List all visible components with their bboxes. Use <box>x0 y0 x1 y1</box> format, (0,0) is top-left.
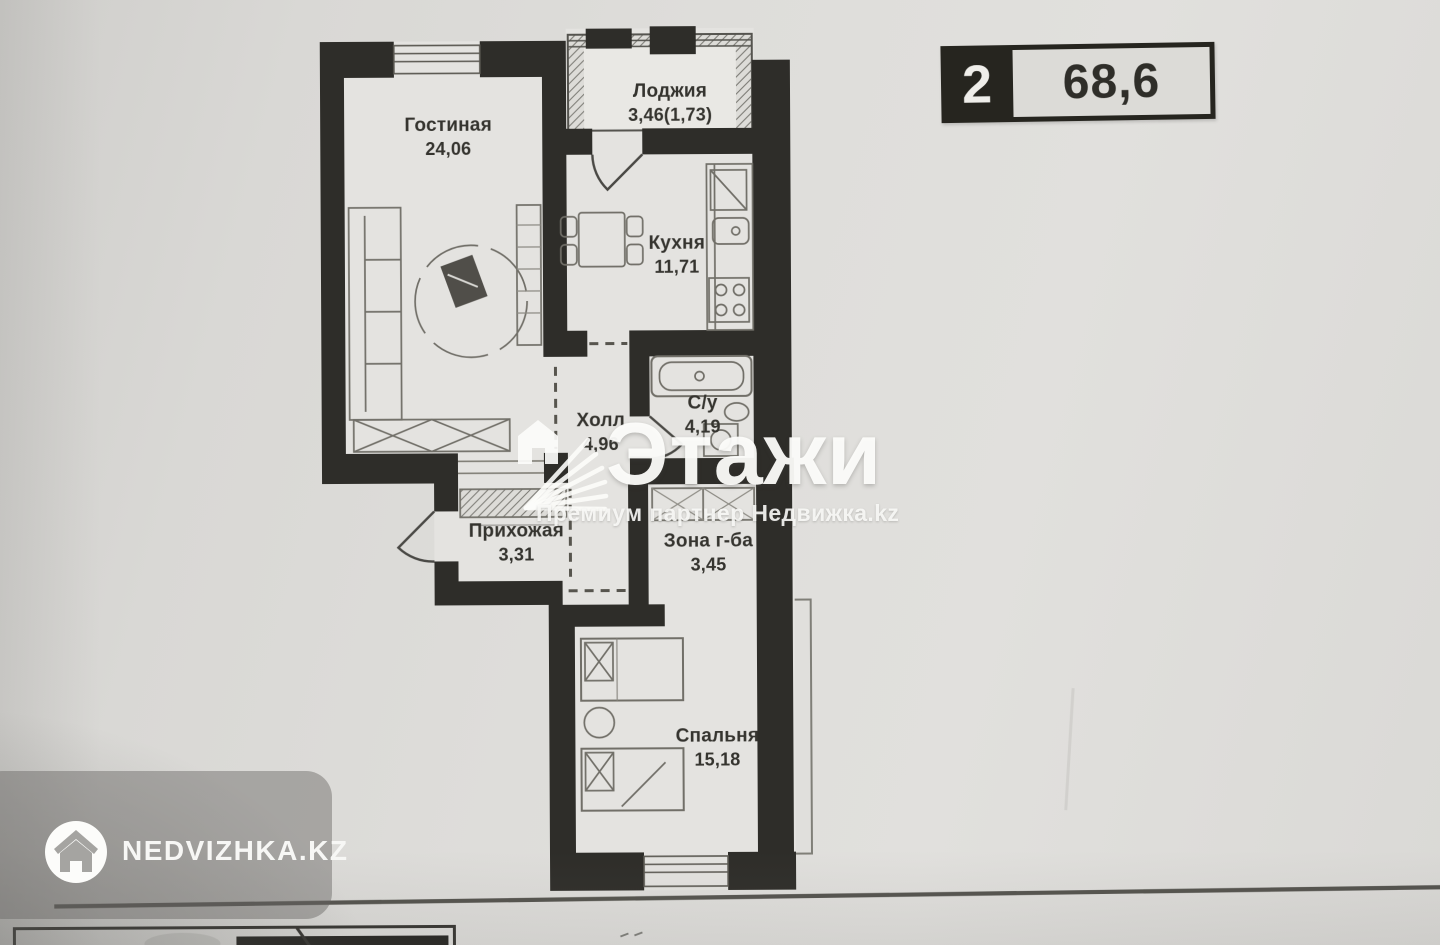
facade-step-line <box>795 600 812 854</box>
badge-total-area: 68,6 <box>1012 47 1210 117</box>
etazhi-watermark: Этажи Премиум партнер Недвижка.kz <box>512 408 942 536</box>
room-area: 11,71 <box>649 256 706 279</box>
room-area: 3,45 <box>664 553 753 576</box>
room-label-kuhnya: Кухня 11,71 <box>648 231 705 279</box>
nedvizhka-site-text: NEDVIZHKA.KZ <box>122 837 348 865</box>
watermark-brand: Этажи <box>606 410 882 498</box>
room-label-lodzhiya: Лоджия 3,46(1,73) <box>628 79 712 127</box>
room-area: 3,46(1,73) <box>628 104 712 127</box>
room-label-spalnya: Спальня 15,18 <box>676 724 760 772</box>
watermark-subtitle: Премиум партнер Недвижка.kz <box>536 502 899 525</box>
next-plan-wall <box>236 935 448 945</box>
room-area: 15,18 <box>676 748 760 771</box>
nedvizhka-house-icon <box>41 817 111 887</box>
entry-door <box>398 511 434 561</box>
room-area: 24,06 <box>405 138 493 161</box>
room-area: 3,31 <box>469 543 564 567</box>
room-name: Кухня <box>648 231 705 256</box>
room-label-zona-garderoba: Зона г-ба 3,45 <box>664 529 753 577</box>
plan-badge: 2 68,6 <box>940 42 1215 123</box>
room-name: Спальня <box>676 724 760 749</box>
paper-crease <box>1065 688 1074 810</box>
room-label-gostinaya: Гостиная 24,06 <box>404 114 492 162</box>
room-name: Гостиная <box>404 114 492 139</box>
room-name: Лоджия <box>628 79 712 104</box>
badge-room-count: 2 <box>940 45 1013 123</box>
floorplan-photo: Гостиная 24,06 Лоджия 3,46(1,73) Кухня 1… <box>0 0 1440 945</box>
